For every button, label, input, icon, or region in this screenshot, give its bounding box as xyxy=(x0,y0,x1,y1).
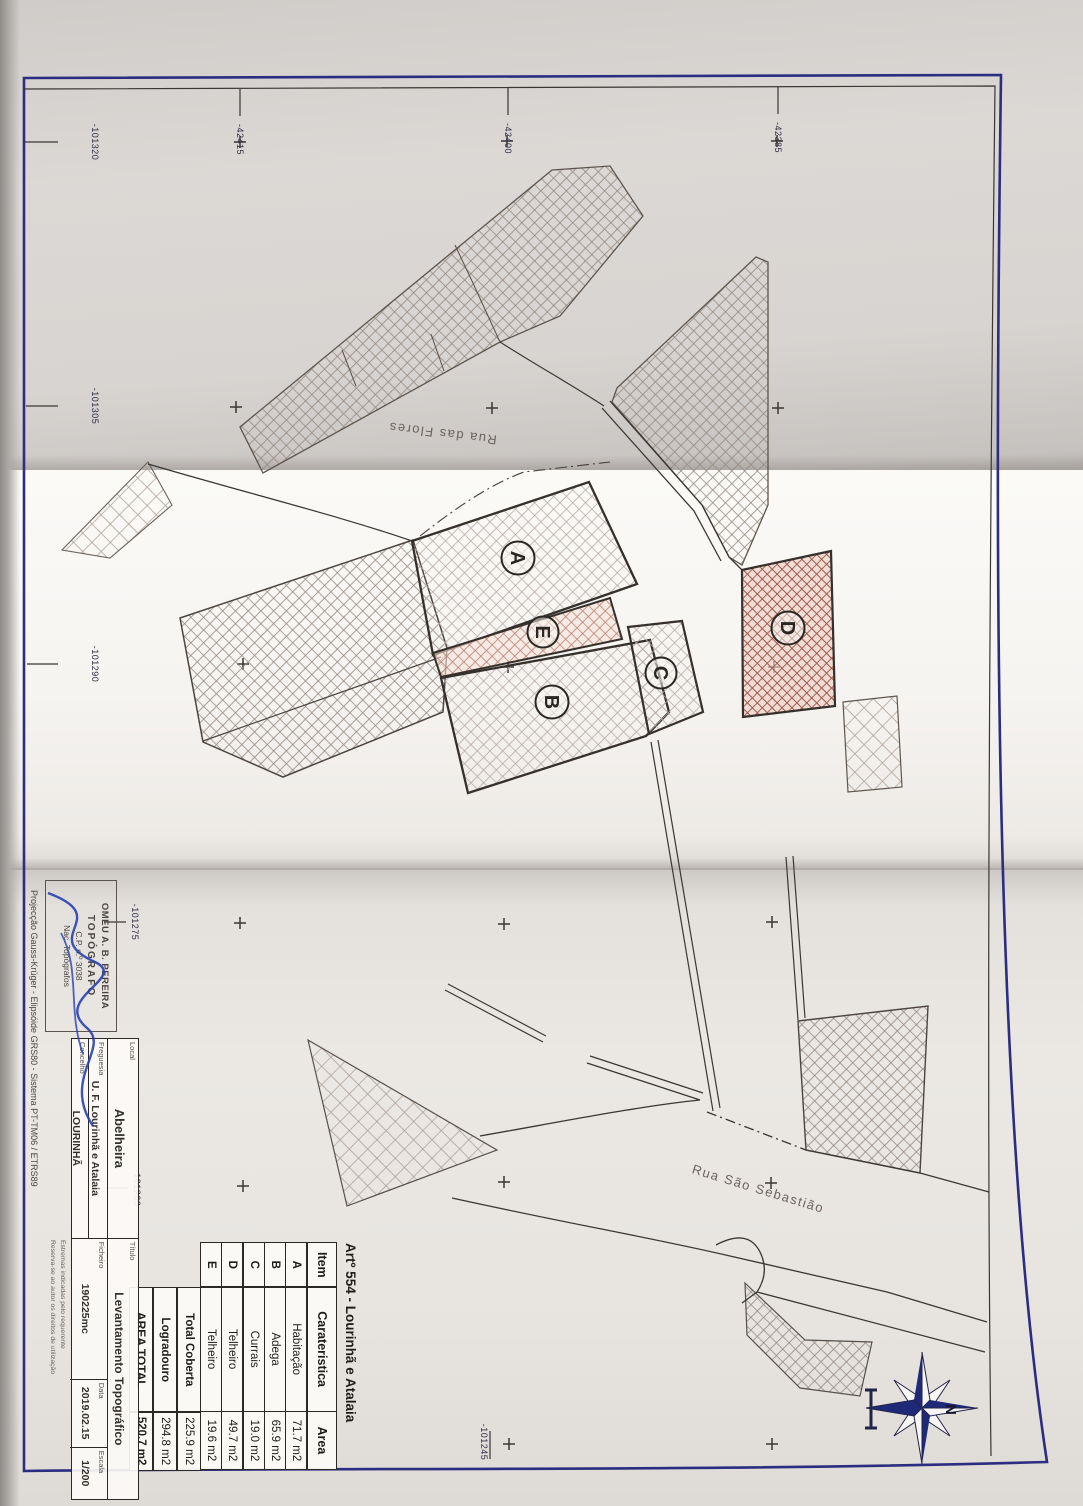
building-label-B: B xyxy=(536,686,569,719)
header-area: Area xyxy=(307,1411,337,1470)
table-row: A Habitação 71.7 m2 xyxy=(285,1243,306,1473)
grid-label-top-1: -42415 xyxy=(235,124,245,155)
row-caracteristica: Currais xyxy=(243,1287,265,1412)
grid-label-left-3: -101290 xyxy=(90,646,100,683)
retaining-wall-segment xyxy=(445,984,546,1042)
field-label: Escala xyxy=(97,1451,106,1474)
grid-label-left-1: -101320 xyxy=(90,124,100,161)
row-item: B xyxy=(264,1242,286,1287)
grid-label-top-2: -42400 xyxy=(503,123,513,154)
building-label-A: A xyxy=(502,542,535,575)
svg-text:A: A xyxy=(506,551,528,565)
field-label: Data xyxy=(97,1383,106,1399)
field-data: Data 2019.02.15 xyxy=(70,1379,107,1447)
scanned-survey-sheet: -42415 -42400 -42385 -101320 -101305 -10… xyxy=(0,0,1083,1506)
street-name-flores: Rua das Flores xyxy=(387,419,497,447)
table-row: B Adega 65.9 m2 xyxy=(264,1243,285,1473)
area-table: Item Carateristica Area A Habitação 71.7… xyxy=(128,1243,336,1473)
building-label-C: C xyxy=(646,658,677,689)
row-caracteristica: Telheiro xyxy=(221,1287,243,1412)
street-name-sebastiao: Rua São Sebastião xyxy=(690,1161,826,1216)
table-row: C Currais 19.0 m2 xyxy=(243,1243,264,1473)
svg-text:D: D xyxy=(776,621,798,635)
title-block: OMEU A. B. PEREIRA TOPÓGRAFO C.P. n.º 30… xyxy=(17,878,139,1502)
row-area: 71.7 m2 xyxy=(285,1411,307,1470)
building-label-D: D xyxy=(772,612,805,645)
header-caracteristica: Carateristica xyxy=(307,1287,337,1412)
total-row-spacer xyxy=(152,1243,176,1288)
row-area: 19.0 m2 xyxy=(243,1411,265,1470)
total-row-spacer xyxy=(176,1243,200,1288)
street-sebastiao-lower-edge xyxy=(452,1198,987,1352)
note-line: Estremas indicadas pelo requerente xyxy=(57,1240,67,1496)
svg-text:E: E xyxy=(531,625,553,638)
row-caracteristica: Habitação xyxy=(285,1287,307,1412)
total-row: Total Coberta 225.9 m2 xyxy=(176,1243,200,1473)
total-label: Total Coberta xyxy=(177,1287,201,1412)
total-row: Logradouro 294.8 m2 xyxy=(152,1243,176,1473)
area-table-title: Artº 554 - Lourinhã e Atalaia xyxy=(336,1243,358,1473)
grid-label-top-3: -42385 xyxy=(773,122,783,153)
row-item: C xyxy=(243,1242,265,1287)
lower-triangle-hatch xyxy=(308,1040,497,1206)
note-line: Reserva-se ao autor os direitos de utili… xyxy=(47,1240,57,1496)
row-caracteristica: Adega xyxy=(264,1287,286,1412)
street-sebastiao-dashdot xyxy=(707,1112,806,1150)
compass-rose: N xyxy=(865,1352,978,1464)
legal-notes: Estremas indicadas pelo requerente Reser… xyxy=(47,1240,67,1496)
north-label: N xyxy=(942,1404,959,1415)
row-item: D xyxy=(221,1242,243,1287)
table-row: E Telheiro 19.6 m2 xyxy=(200,1243,221,1473)
neighbour-wedge-right xyxy=(612,257,768,565)
row-area: 65.9 m2 xyxy=(264,1411,286,1470)
field-ficheiro: Ficheiro 190225mc xyxy=(70,1239,107,1379)
lower-right-block-hatch xyxy=(798,1006,928,1173)
table-row: D Telheiro 49.7 m2 xyxy=(221,1243,242,1473)
total-label: Logradouro xyxy=(153,1287,177,1412)
total-value: 294.8 m2 xyxy=(153,1412,177,1471)
annex-hatch-right xyxy=(843,696,902,792)
field-label: Ficheiro xyxy=(97,1242,106,1269)
field-value: Levantamento Topográfico xyxy=(108,1239,138,1499)
corridor-walls xyxy=(651,740,805,1111)
signature xyxy=(29,878,133,1148)
bottom-hatch-patch xyxy=(745,1283,872,1396)
row-area: 49.7 m2 xyxy=(221,1411,243,1470)
row-caracteristica: Telheiro xyxy=(200,1287,222,1412)
total-value: 225.9 m2 xyxy=(177,1412,201,1471)
svg-text:B: B xyxy=(540,695,562,709)
building-label-E: E xyxy=(528,617,559,648)
row-area: 19.6 m2 xyxy=(200,1411,222,1470)
row-item: A xyxy=(285,1242,307,1287)
grid-label-left-2: -101305 xyxy=(90,388,100,425)
neighbour-sliver-left xyxy=(62,462,172,558)
field-titulo: Título Levantamento Topográfico xyxy=(108,1239,138,1499)
grid-label-bottom: -101245 xyxy=(479,1424,489,1461)
svg-text:C: C xyxy=(649,666,671,680)
field-file-date-scale: Ficheiro 190225mc Data 2019.02.15 Escala… xyxy=(70,1239,108,1499)
field-label: Título xyxy=(128,1242,137,1261)
area-table-header-row: Item Carateristica Area xyxy=(307,1243,336,1473)
header-item: Item xyxy=(307,1242,337,1287)
logradouro-hatch xyxy=(180,540,447,777)
row-item: E xyxy=(200,1242,222,1287)
field-escala: Escala 1/200 xyxy=(70,1447,107,1499)
area-table-block: Artº 554 - Lourinhã e Atalaia Item Carat… xyxy=(120,1243,358,1473)
